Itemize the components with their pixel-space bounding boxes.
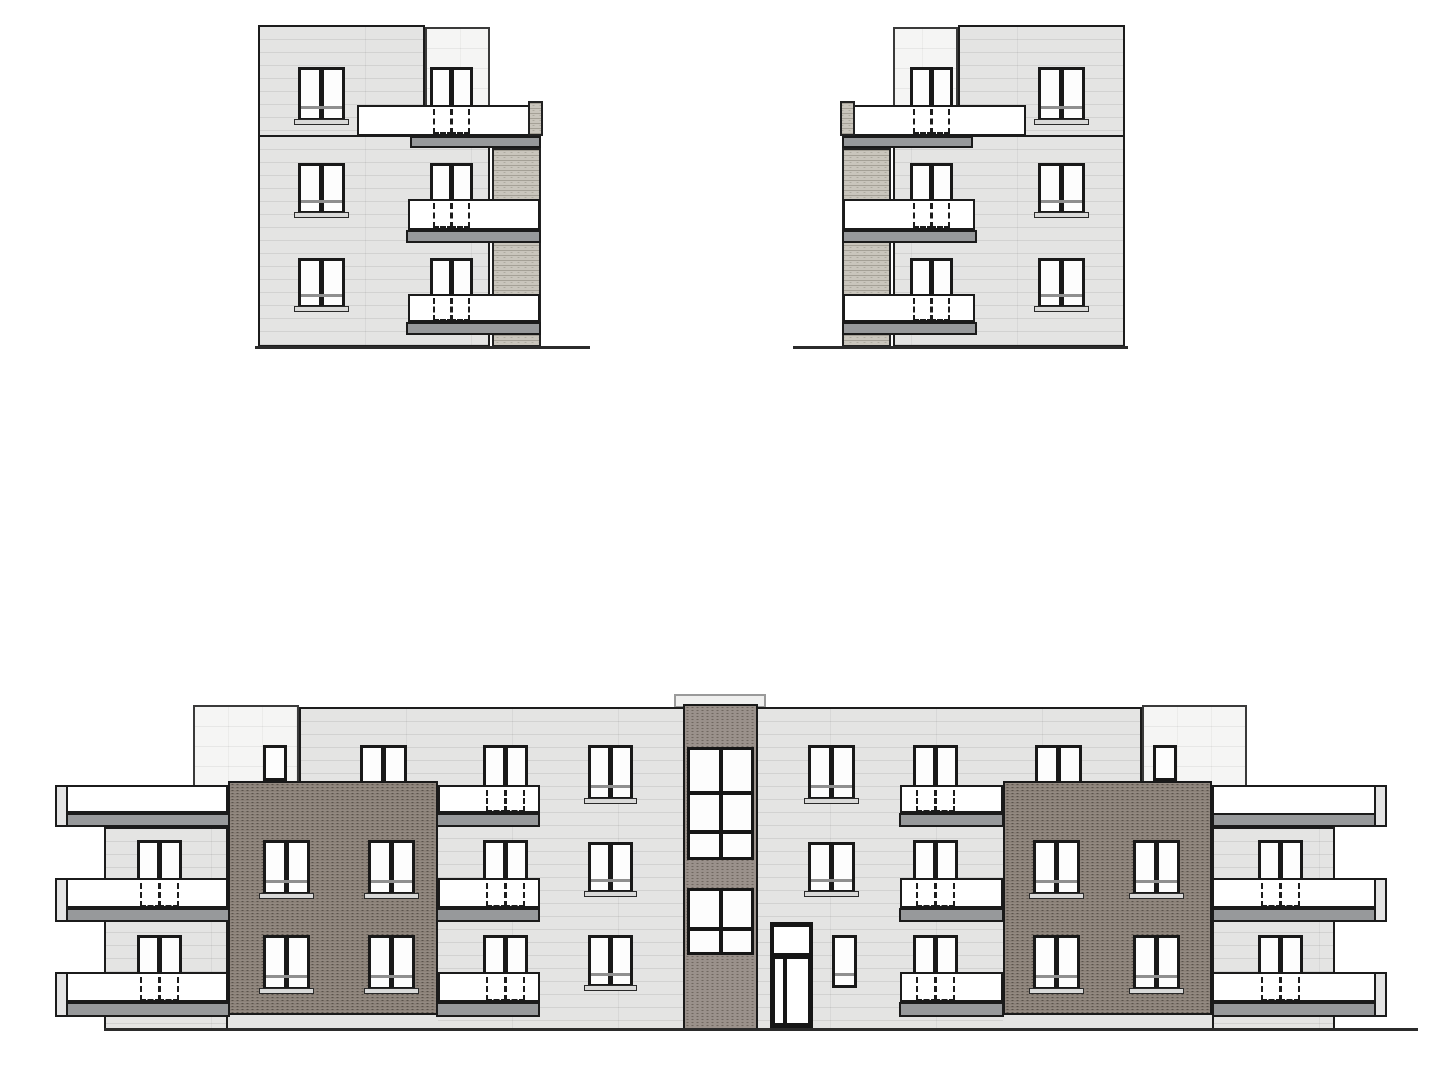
window — [1133, 935, 1180, 990]
window-pane — [508, 938, 525, 973]
window-pane — [433, 261, 449, 294]
balcony-slab — [1212, 908, 1387, 922]
balcony-door-dashed — [1258, 977, 1303, 1001]
dashed-door-outline — [158, 883, 179, 907]
window-pane — [301, 166, 319, 211]
window-sill — [1034, 119, 1089, 125]
window-pane — [486, 748, 503, 786]
window-pane — [934, 70, 950, 105]
window-pane — [723, 931, 752, 952]
window-pane — [1036, 843, 1054, 892]
window-transom — [811, 785, 852, 788]
stairwell-window-upper — [687, 747, 754, 860]
balcony-slab — [899, 1002, 1004, 1017]
ground-floor-window — [832, 935, 857, 988]
window-sill — [294, 212, 349, 218]
window-sill — [1129, 893, 1184, 899]
dashed-door-outline — [913, 203, 933, 228]
window-sill — [584, 985, 637, 991]
balcony-door-dashed — [913, 883, 958, 907]
window-pane — [162, 938, 179, 973]
window-pane — [1136, 938, 1154, 987]
window-sill — [294, 306, 349, 312]
window-pane — [301, 261, 319, 305]
window-transom — [266, 975, 307, 978]
window-pane — [834, 845, 852, 890]
window-pane — [266, 938, 284, 987]
window-sill — [1034, 306, 1089, 312]
window — [588, 745, 633, 800]
window — [298, 163, 345, 214]
ground-line — [793, 346, 1128, 349]
window-pane — [433, 166, 449, 199]
window — [263, 935, 310, 990]
window — [298, 258, 345, 308]
window-pane — [454, 70, 470, 105]
balcony-slab — [899, 908, 1004, 922]
balcony-door-dashed — [137, 977, 182, 1001]
ground-line — [104, 1028, 1418, 1031]
balcony-post — [1374, 878, 1387, 922]
balcony-door-dashed — [913, 977, 958, 1001]
window-transom — [1041, 106, 1082, 109]
balcony-door — [430, 163, 473, 202]
balcony-door-dashed — [483, 790, 528, 812]
window — [588, 842, 633, 893]
window-sill — [584, 891, 637, 897]
balcony-post — [55, 972, 68, 1017]
window-sill — [259, 988, 314, 994]
window-transom — [1041, 294, 1082, 297]
window-pane — [1283, 938, 1300, 973]
window-pane — [1064, 70, 1082, 118]
front-elevation — [55, 690, 1425, 1038]
side-elevation-left — [253, 20, 590, 355]
window-pane — [834, 748, 852, 797]
window-pane — [811, 845, 829, 890]
dashed-door-outline — [504, 977, 525, 1001]
balcony-slab — [55, 908, 230, 922]
window-pane — [266, 843, 284, 892]
window-pane — [289, 938, 307, 987]
window-pane — [690, 795, 719, 830]
balcony-slab — [406, 230, 541, 243]
window-sill — [804, 798, 859, 804]
balcony-door — [483, 935, 528, 976]
dashed-door-outline — [934, 883, 955, 907]
window-pane — [916, 938, 933, 973]
window-pane — [1041, 166, 1059, 211]
window — [808, 842, 855, 893]
door-panel — [787, 959, 808, 1023]
window-pane — [1036, 938, 1054, 987]
window-pane — [1261, 938, 1278, 973]
balcony-door — [137, 935, 182, 976]
ground-line — [255, 346, 590, 349]
window — [368, 935, 415, 990]
window-pane — [723, 891, 752, 927]
window-sill — [584, 798, 637, 804]
stairwell-window-row — [690, 795, 751, 830]
window-sill — [804, 891, 859, 897]
window-sill — [1029, 988, 1084, 994]
balcony-door — [913, 745, 958, 789]
balcony-door — [430, 67, 473, 108]
balcony-slab — [436, 1002, 540, 1017]
dashed-door-outline — [934, 790, 955, 812]
window-pane — [394, 938, 412, 987]
window-pane — [508, 843, 525, 879]
balcony-door-dashed — [910, 109, 953, 134]
window-pane — [162, 843, 179, 879]
balcony-door-dashed — [430, 298, 473, 321]
balcony-door-dashed — [483, 883, 528, 907]
stairwell-window-lower — [687, 888, 754, 955]
window-pane — [913, 166, 929, 199]
balcony-door-dashed — [913, 790, 958, 812]
dashed-door-outline — [158, 977, 179, 1001]
balcony-slab — [436, 813, 540, 827]
window-transom — [1041, 200, 1082, 203]
balcony-slab — [842, 136, 973, 148]
balcony-door — [1258, 840, 1303, 882]
window-sill — [364, 893, 419, 899]
balcony-slab — [842, 322, 977, 335]
window-transom — [1036, 880, 1077, 883]
balcony-post — [1374, 972, 1387, 1017]
balcony-slab — [406, 322, 541, 335]
balcony-railing — [843, 199, 975, 230]
window-pane — [723, 795, 752, 830]
dashed-door-outline — [1279, 883, 1300, 907]
balcony-post — [1374, 785, 1387, 827]
window-pane — [1261, 843, 1278, 879]
window-pane — [324, 261, 342, 305]
window-pane — [938, 843, 955, 879]
balcony-slab — [1212, 813, 1387, 827]
window-pane — [1156, 748, 1174, 778]
window-pane — [1064, 166, 1082, 211]
window-sill — [1029, 893, 1084, 899]
balcony-door-dashed — [430, 109, 473, 134]
balcony-slab — [55, 813, 230, 827]
window-pane — [690, 834, 719, 857]
window-pane — [371, 843, 389, 892]
balcony-door — [913, 840, 958, 882]
balcony-door-dashed — [910, 298, 953, 321]
window-pane — [1064, 261, 1082, 305]
window-pane — [613, 845, 630, 890]
window-pane — [486, 938, 503, 973]
window-pane — [1136, 843, 1154, 892]
dashed-door-outline — [934, 977, 955, 1001]
entrance-door — [770, 922, 813, 1028]
window-pane — [934, 261, 950, 294]
window-transom — [371, 880, 412, 883]
window — [368, 840, 415, 895]
balcony-railing — [1212, 785, 1383, 815]
window-pane — [613, 748, 630, 797]
window-pane — [591, 748, 608, 797]
door-transom — [774, 927, 809, 953]
window-transom — [266, 880, 307, 883]
balcony-door — [137, 840, 182, 882]
window-pane — [433, 70, 449, 105]
window-sill — [364, 988, 419, 994]
window — [263, 840, 310, 895]
window-pane — [1159, 938, 1177, 987]
dashed-door-outline — [504, 883, 525, 907]
dashed-door-outline — [504, 790, 525, 812]
dashed-door-outline — [913, 298, 933, 321]
window-transom — [835, 973, 854, 976]
window-pane — [324, 70, 342, 118]
dashed-door-outline — [1279, 977, 1300, 1001]
stairwell-window-row — [690, 834, 751, 857]
window-sill — [1034, 212, 1089, 218]
window — [1033, 935, 1080, 990]
pier-cap — [528, 101, 543, 136]
window-pane — [591, 938, 608, 984]
window-pane — [938, 748, 955, 786]
window-sill — [294, 119, 349, 125]
window-pane — [591, 845, 608, 890]
window-transom — [1036, 975, 1077, 978]
balcony-slab — [899, 813, 1004, 827]
balcony-door-dashed — [1258, 883, 1303, 907]
window-pane — [289, 843, 307, 892]
balcony-railing — [408, 199, 540, 230]
window-pane — [916, 843, 933, 879]
balcony-door — [910, 163, 953, 202]
window-transom — [1136, 975, 1177, 978]
dashed-door-outline — [450, 298, 470, 321]
stairwell-window-row — [690, 891, 751, 927]
balcony-post — [55, 878, 68, 922]
window-pane — [454, 261, 470, 294]
balcony-slab — [1212, 1002, 1387, 1017]
window — [1133, 840, 1180, 895]
window-pane — [690, 750, 719, 791]
window-pane — [508, 748, 525, 786]
window-pane — [723, 750, 752, 791]
window-pane — [140, 938, 157, 973]
balcony-door — [483, 840, 528, 882]
balcony-door-dashed — [430, 203, 473, 228]
balcony-door — [910, 67, 953, 108]
side-elevation-right — [793, 20, 1130, 355]
window-transom — [301, 106, 342, 109]
window-pane — [811, 748, 829, 797]
window — [1038, 67, 1085, 121]
window-pane — [913, 261, 929, 294]
window — [1038, 258, 1085, 308]
window-transom — [301, 200, 342, 203]
dashed-door-outline — [930, 203, 950, 228]
dashed-door-outline — [930, 298, 950, 321]
door-sidelight — [775, 959, 783, 1023]
window-pane — [938, 938, 955, 973]
window-pane — [1059, 938, 1077, 987]
window-pane — [1059, 843, 1077, 892]
window-pane — [913, 70, 929, 105]
window-pane — [934, 166, 950, 199]
stairwell-window-row — [690, 931, 751, 952]
balcony-door — [910, 258, 953, 297]
penthouse-window-left — [263, 745, 287, 781]
window-transom — [811, 879, 852, 882]
drawing-canvas — [0, 0, 1446, 1080]
dashed-door-outline — [450, 203, 470, 228]
window — [298, 67, 345, 121]
window-pane — [394, 843, 412, 892]
balcony-door — [913, 935, 958, 976]
balcony-railing — [843, 294, 975, 322]
window-pane — [266, 748, 284, 778]
balcony-door-dashed — [483, 977, 528, 1001]
window-sill — [259, 893, 314, 899]
window — [588, 935, 633, 987]
balcony-slab — [55, 1002, 230, 1017]
balcony-slab — [410, 136, 541, 148]
balcony-post — [55, 785, 68, 827]
window-transom — [591, 785, 630, 788]
window — [808, 745, 855, 800]
balcony-door-dashed — [137, 883, 182, 907]
balcony-door — [430, 258, 473, 297]
stairwell-window-row — [690, 750, 751, 791]
dashed-door-outline — [450, 109, 470, 134]
window-pane — [613, 938, 630, 984]
window-pane — [1159, 843, 1177, 892]
balcony-door-dashed — [910, 203, 953, 228]
dashed-door-outline — [913, 109, 933, 134]
window-sill — [1129, 988, 1184, 994]
window-pane — [723, 834, 752, 857]
window-pane — [301, 70, 319, 118]
window — [1033, 840, 1080, 895]
window-transom — [301, 294, 342, 297]
dashed-door-outline — [930, 109, 950, 134]
window-pane — [835, 938, 854, 985]
window-pane — [690, 891, 719, 927]
window-pane — [1041, 70, 1059, 118]
balcony-railing — [57, 785, 228, 813]
window-transom — [591, 973, 630, 976]
window-pane — [1041, 261, 1059, 305]
window-pane — [1283, 843, 1300, 879]
balcony-slab — [436, 908, 540, 922]
window-transom — [1136, 880, 1177, 883]
balcony-door — [1258, 935, 1303, 976]
balcony-slab — [842, 230, 977, 243]
pier-cap — [840, 101, 855, 136]
window-pane — [690, 931, 719, 952]
balcony-door — [483, 745, 528, 789]
window-pane — [454, 166, 470, 199]
window-transom — [371, 975, 412, 978]
balcony-railing — [408, 294, 540, 322]
window-pane — [371, 938, 389, 987]
window-pane — [140, 843, 157, 879]
window-pane — [486, 843, 503, 879]
penthouse-window-right — [1153, 745, 1177, 781]
window-pane — [916, 748, 933, 786]
window-pane — [324, 166, 342, 211]
window — [1038, 163, 1085, 214]
window-transom — [591, 879, 630, 882]
